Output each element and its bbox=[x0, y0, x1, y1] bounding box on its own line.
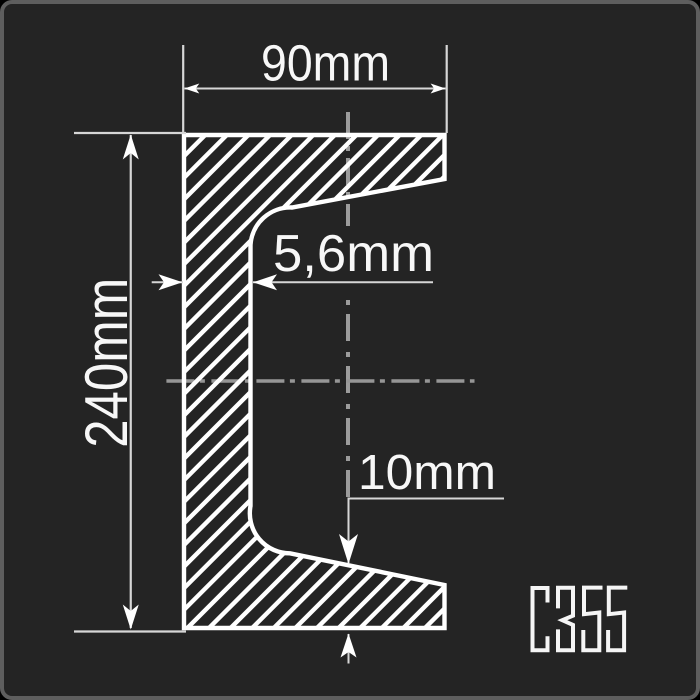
svg-text:240mm: 240mm bbox=[73, 278, 140, 448]
svg-text:10mm: 10mm bbox=[358, 445, 496, 500]
svg-text:90mm: 90mm bbox=[261, 35, 390, 92]
svg-text:5,6mm: 5,6mm bbox=[273, 225, 434, 283]
